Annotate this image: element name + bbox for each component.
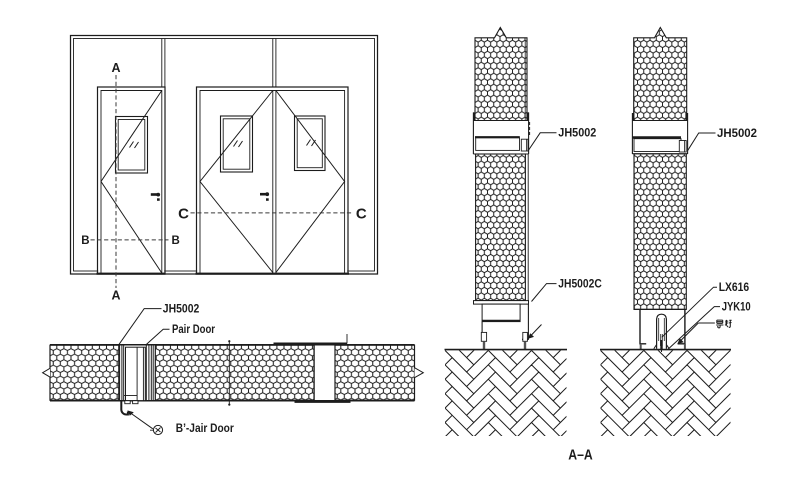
svg-text:B: B [171, 235, 179, 247]
svg-text:JYK10: JYK10 [722, 301, 751, 313]
svg-text:A: A [111, 288, 120, 302]
svg-text:JH5002C: JH5002C [558, 279, 602, 291]
svg-text:LX616: LX616 [719, 282, 750, 294]
svg-text:B’-Jair Door: B’-Jair Door [176, 423, 234, 435]
svg-text:A–A: A–A [568, 447, 593, 463]
svg-text:B: B [81, 235, 89, 247]
svg-text:JH5002: JH5002 [558, 128, 596, 140]
svg-text:Pair Door: Pair Door [172, 324, 215, 336]
svg-text:C: C [178, 206, 189, 223]
svg-text:JH5002: JH5002 [717, 128, 757, 140]
svg-text:C: C [356, 206, 367, 223]
svg-text:A: A [111, 61, 120, 75]
svg-text:JH5002: JH5002 [163, 303, 200, 315]
